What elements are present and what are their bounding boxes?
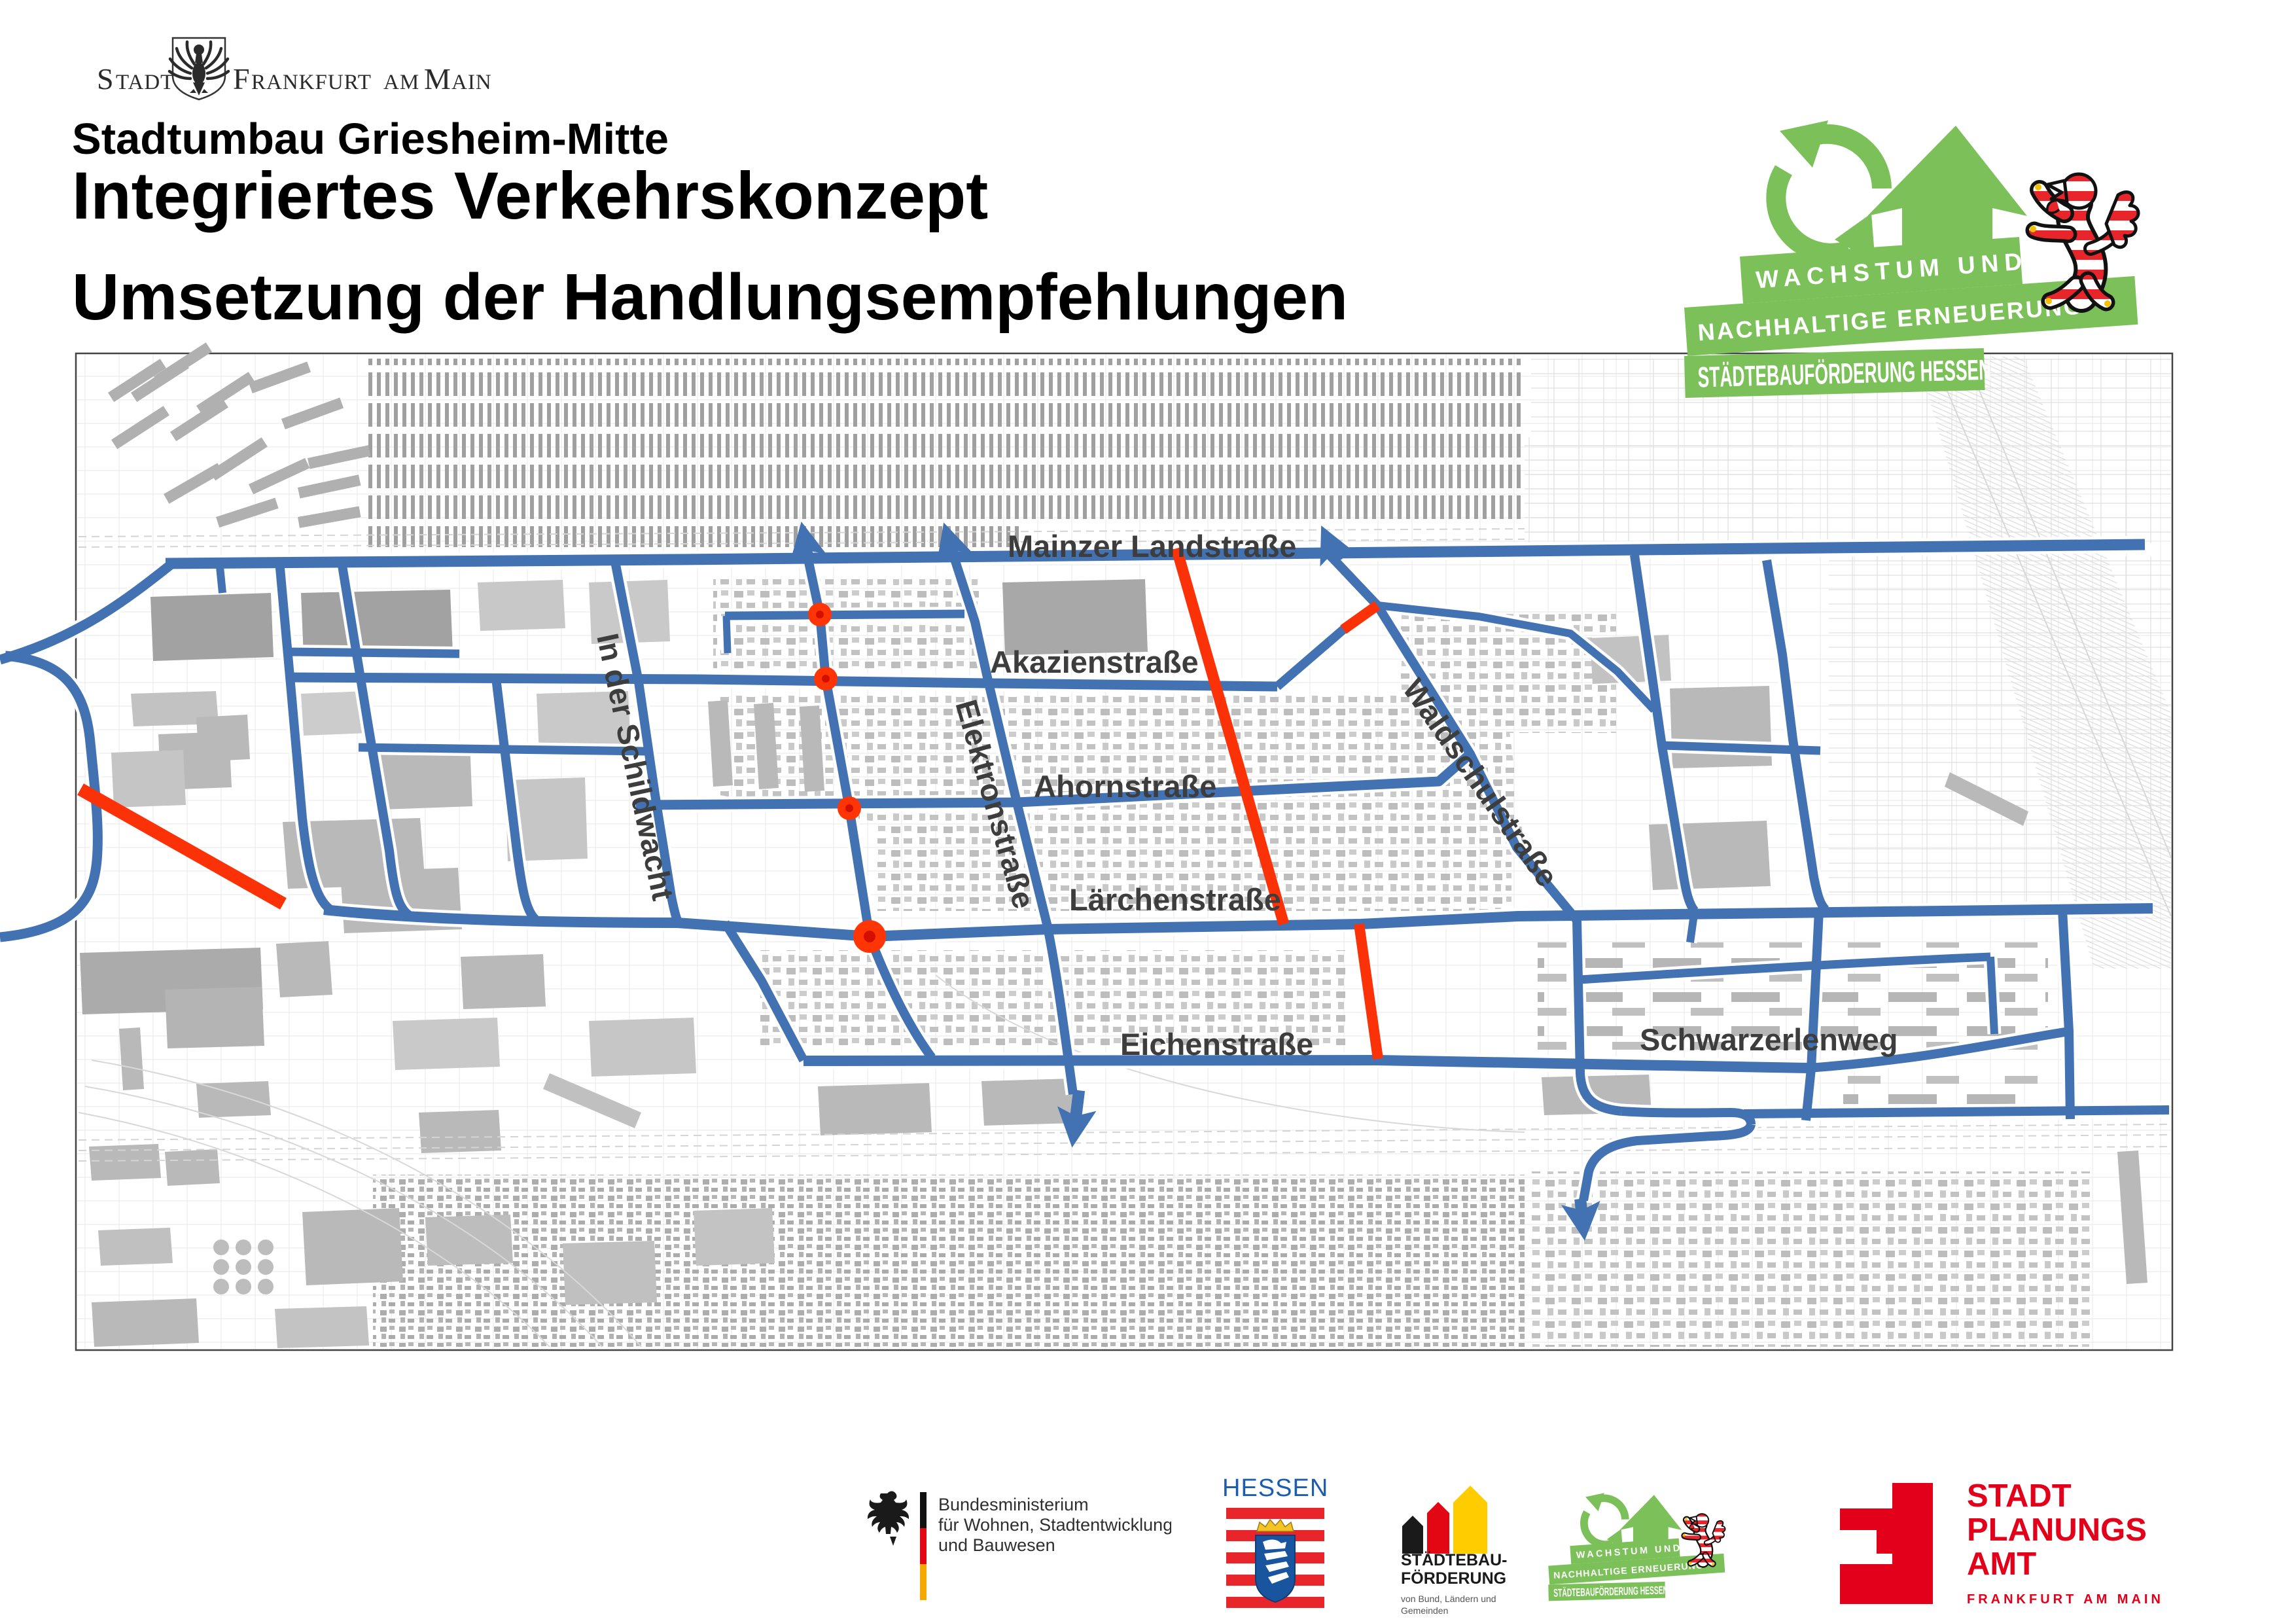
svg-text:FRANKFURT AM MAIN: FRANKFURT AM MAIN bbox=[1967, 1592, 2164, 1607]
svg-text:und Bauwesen: und Bauwesen bbox=[938, 1535, 1055, 1555]
svg-text:Akazienstraße: Akazienstraße bbox=[990, 645, 1199, 679]
svg-text:STADT: STADT bbox=[1967, 1478, 2072, 1514]
svg-text:Mainzer Landstraße: Mainzer Landstraße bbox=[1008, 529, 1296, 563]
svg-text:PLANUNGS: PLANUNGS bbox=[1967, 1512, 2147, 1548]
svg-text:Bundesministerium: Bundesministerium bbox=[938, 1495, 1089, 1514]
svg-text:Ahornstraße: Ahornstraße bbox=[1034, 769, 1216, 804]
svg-text:AMT: AMT bbox=[1967, 1546, 2036, 1582]
svg-text:Schwarzerlenweg: Schwarzerlenweg bbox=[1640, 1022, 1898, 1057]
svg-text:Eichenstraße: Eichenstraße bbox=[1120, 1027, 1313, 1061]
svg-text:FÖRDERUNG: FÖRDERUNG bbox=[1401, 1569, 1506, 1588]
svg-text:von Bund, Ländern und: von Bund, Ländern und bbox=[1401, 1594, 1496, 1604]
svg-text:STÄDTEBAU-: STÄDTEBAU- bbox=[1401, 1551, 1508, 1569]
svg-text:für Wohnen, Stadtentwicklung: für Wohnen, Stadtentwicklung bbox=[938, 1515, 1171, 1535]
svg-text:Lärchenstraße: Lärchenstraße bbox=[1069, 882, 1281, 917]
svg-text:Gemeinden: Gemeinden bbox=[1401, 1605, 1448, 1616]
svg-text:HESSEN: HESSEN bbox=[1222, 1474, 1328, 1502]
